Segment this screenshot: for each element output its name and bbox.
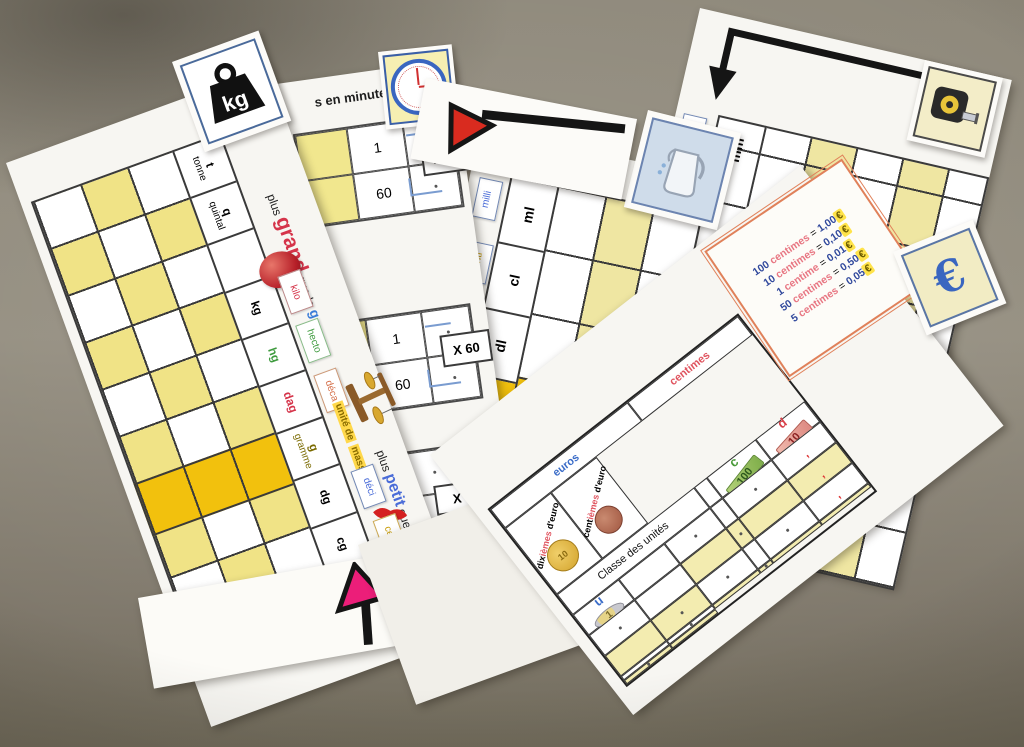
times-60-box: X 60: [439, 329, 493, 368]
centimes-label: centimes: [627, 316, 752, 421]
prefix-card-milli: milli: [471, 177, 503, 221]
kg-weight-icon: kg: [180, 38, 284, 144]
photo-scene: mm milli centi ml cl dl l milli centi dé…: [0, 0, 1024, 747]
jug-icon: [631, 117, 734, 223]
tape-measure-icon: [913, 66, 997, 152]
